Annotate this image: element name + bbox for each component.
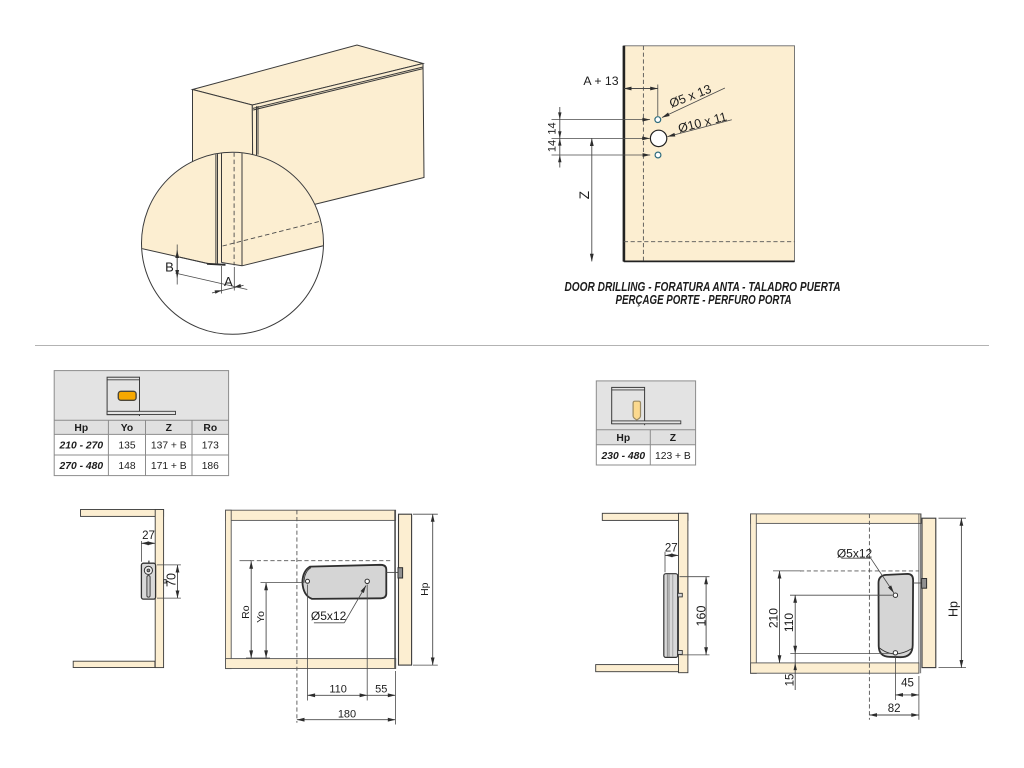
svg-text:DOOR DRILLING - FORATURA ANTA: DOOR DRILLING - FORATURA ANTA - TALADRO … [565,280,841,294]
svg-text:Ro: Ro [203,423,217,434]
svg-text:186: 186 [202,461,219,472]
svg-text:135: 135 [118,441,135,452]
svg-text:148: 148 [118,461,135,472]
svg-text:230 - 480: 230 - 480 [601,451,646,462]
svg-text:27: 27 [665,543,678,555]
svg-text:123 + B: 123 + B [655,451,691,462]
svg-text:137 + B: 137 + B [151,441,187,452]
svg-text:160: 160 [694,606,708,627]
svg-text:180: 180 [338,709,356,721]
svg-text:110: 110 [329,683,347,695]
svg-text:A: A [224,274,233,289]
svg-text:Z: Z [577,191,592,199]
svg-text:55: 55 [375,683,387,695]
svg-text:270 - 480: 270 - 480 [59,461,104,472]
svg-text:14: 14 [546,140,558,152]
svg-text:14: 14 [546,122,558,134]
svg-text:A + 13: A + 13 [583,74,618,88]
svg-text:PERÇAGE PORTE - PERFURO PORTA: PERÇAGE PORTE - PERFURO PORTA [616,293,792,307]
svg-text:70: 70 [165,573,179,587]
svg-text:171 + B: 171 + B [151,461,187,472]
svg-text:B: B [165,260,174,275]
svg-text:45: 45 [901,678,914,690]
svg-text:Ro: Ro [240,605,252,619]
svg-text:Hp: Hp [74,423,88,434]
svg-text:173: 173 [202,441,219,452]
svg-text:82: 82 [888,703,901,715]
svg-text:Z: Z [670,433,676,444]
svg-text:Hp: Hp [616,433,630,444]
svg-text:27: 27 [142,530,155,542]
svg-text:Hp: Hp [419,582,431,596]
svg-text:Yo: Yo [121,423,133,434]
svg-text:Ø5x12: Ø5x12 [311,609,347,623]
svg-text:Z: Z [166,423,172,434]
svg-text:15: 15 [785,674,797,687]
svg-text:210: 210 [767,608,781,628]
svg-text:Yo: Yo [255,611,267,623]
svg-text:110: 110 [782,613,796,632]
svg-text:210 - 270: 210 - 270 [59,441,104,452]
svg-text:Hp: Hp [946,601,960,617]
